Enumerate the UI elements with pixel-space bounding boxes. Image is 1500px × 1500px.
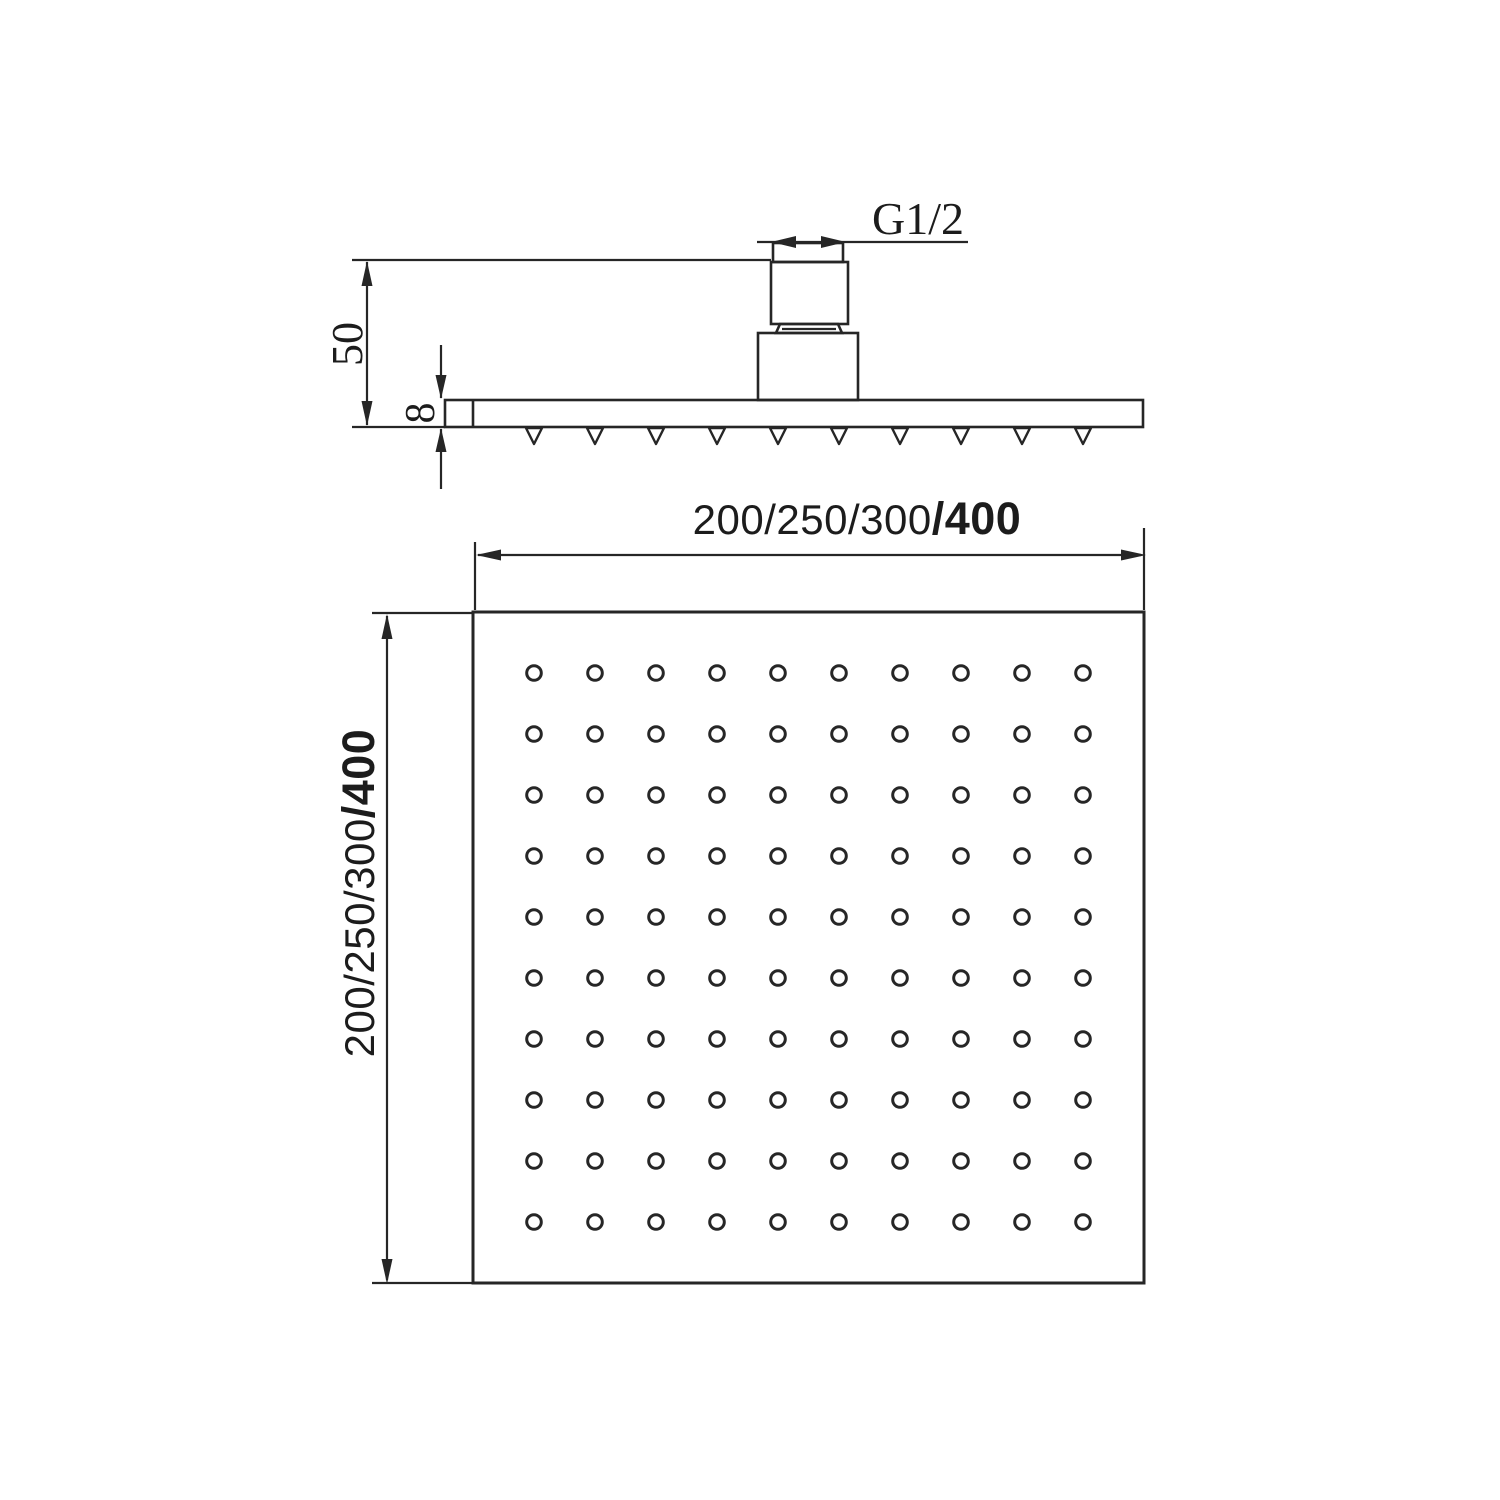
nozzle <box>1075 428 1091 444</box>
spray-hole <box>954 1093 969 1108</box>
arrowhead-down-icon <box>382 1259 393 1284</box>
spray-hole <box>771 727 786 742</box>
spray-hole <box>588 849 603 864</box>
nozzle <box>526 428 542 444</box>
nozzle <box>892 428 908 444</box>
nozzle <box>587 428 603 444</box>
spray-hole <box>527 849 542 864</box>
spray-hole <box>893 1093 908 1108</box>
spray-hole <box>832 666 847 681</box>
spray-hole <box>954 1154 969 1169</box>
spray-hole <box>771 1154 786 1169</box>
connector-nut <box>771 262 848 324</box>
inlet-connector <box>758 243 858 400</box>
side-view: G1/2 50 <box>323 193 1143 489</box>
arrowhead-down-icon <box>436 375 447 399</box>
spray-hole <box>649 971 664 986</box>
shower-head-drawing: G1/2 50 <box>0 0 1500 1500</box>
spray-hole <box>832 1032 847 1047</box>
spray-hole <box>649 1032 664 1047</box>
spray-hole <box>710 788 725 803</box>
spray-hole <box>649 849 664 864</box>
spray-hole <box>1076 849 1091 864</box>
arrowhead-up-icon <box>362 261 373 286</box>
spray-hole <box>771 1093 786 1108</box>
height-selected-text: /400 <box>333 729 384 819</box>
nozzle <box>1014 428 1030 444</box>
spray-hole <box>649 666 664 681</box>
spray-hole <box>710 910 725 925</box>
spray-hole <box>649 788 664 803</box>
height-dimension-label-plan: 200/250/300/400 <box>333 729 384 1058</box>
width-sizes-text: 200/250/300 <box>693 496 932 543</box>
nozzle <box>648 428 664 444</box>
spray-hole <box>527 910 542 925</box>
plate-profile <box>445 400 1143 427</box>
spray-hole <box>1076 1154 1091 1169</box>
spray-hole <box>1076 666 1091 681</box>
plate-face-outline <box>473 612 1144 1283</box>
threaded-inlet-tip <box>773 243 843 262</box>
spray-hole <box>527 1215 542 1230</box>
spray-hole <box>1015 971 1030 986</box>
spray-hole <box>771 1032 786 1047</box>
spray-hole <box>710 1032 725 1047</box>
spray-hole <box>527 666 542 681</box>
spray-hole <box>527 1032 542 1047</box>
spray-hole <box>771 971 786 986</box>
spray-hole <box>1076 910 1091 925</box>
spray-hole <box>893 1154 908 1169</box>
spray-hole <box>832 1093 847 1108</box>
arrowhead-down-icon <box>362 401 373 426</box>
spray-hole <box>893 727 908 742</box>
spray-hole <box>771 910 786 925</box>
spray-hole <box>832 788 847 803</box>
spray-hole <box>1015 1154 1030 1169</box>
spray-hole <box>954 910 969 925</box>
spray-hole <box>893 849 908 864</box>
spray-hole <box>1076 1093 1091 1108</box>
spray-hole <box>832 849 847 864</box>
spray-hole <box>1076 1215 1091 1230</box>
connector-base <box>758 333 858 400</box>
spray-hole <box>832 727 847 742</box>
nozzle <box>709 428 725 444</box>
spray-hole <box>954 971 969 986</box>
plan-view: 200/250/300/400 200/250/300/400 <box>333 493 1146 1284</box>
spray-hole <box>1076 788 1091 803</box>
height-sizes-text: 200/250/300 <box>336 818 383 1057</box>
spray-hole <box>954 666 969 681</box>
spray-hole <box>1015 727 1030 742</box>
spray-hole <box>893 788 908 803</box>
spray-hole <box>527 1154 542 1169</box>
spray-hole <box>771 788 786 803</box>
spray-hole <box>832 910 847 925</box>
spray-hole <box>893 1032 908 1047</box>
spray-hole <box>527 971 542 986</box>
nozzle <box>831 428 847 444</box>
spray-hole <box>588 727 603 742</box>
width-dimension-label: 200/250/300/400 <box>693 493 1022 544</box>
spray-hole <box>893 666 908 681</box>
spray-hole <box>893 1215 908 1230</box>
spray-hole <box>1015 1032 1030 1047</box>
shower-plate-side <box>445 400 1143 444</box>
spray-hole <box>710 1093 725 1108</box>
spray-hole <box>771 1215 786 1230</box>
spray-hole <box>710 1215 725 1230</box>
spray-hole <box>954 1032 969 1047</box>
width-dimension: 200/250/300/400 <box>475 493 1146 610</box>
spray-hole <box>649 727 664 742</box>
spray-hole <box>832 1154 847 1169</box>
spray-hole <box>954 727 969 742</box>
width-selected-text: /400 <box>932 493 1022 544</box>
arrowhead-up-icon <box>436 428 447 452</box>
spray-hole <box>588 788 603 803</box>
thickness-dimension-label: 8 <box>398 403 444 424</box>
spray-hole <box>588 910 603 925</box>
nozzle <box>770 428 786 444</box>
spray-hole <box>771 666 786 681</box>
thread-dimension: G1/2 <box>757 193 968 248</box>
spray-hole <box>1076 971 1091 986</box>
spray-hole <box>588 971 603 986</box>
arrowhead-left-icon <box>476 550 501 561</box>
nozzle-row <box>526 428 1091 444</box>
spray-hole <box>710 1154 725 1169</box>
height-dimension-label: 50 <box>323 322 372 366</box>
height-dimension-plan: 200/250/300/400 <box>333 613 474 1284</box>
spray-hole <box>1076 727 1091 742</box>
spray-hole <box>588 1093 603 1108</box>
spray-hole <box>1015 849 1030 864</box>
spray-hole <box>1015 788 1030 803</box>
height-dimension: 50 <box>323 260 771 427</box>
spray-hole <box>649 1093 664 1108</box>
nozzle <box>953 428 969 444</box>
spray-hole <box>832 971 847 986</box>
spray-hole <box>954 849 969 864</box>
spray-hole <box>1015 910 1030 925</box>
spray-hole <box>710 971 725 986</box>
spray-hole <box>588 1215 603 1230</box>
spray-hole <box>1015 666 1030 681</box>
arrowhead-up-icon <box>382 614 393 639</box>
spray-hole <box>710 727 725 742</box>
spray-hole <box>893 910 908 925</box>
arrowhead-right-icon <box>1121 550 1146 561</box>
spray-hole <box>954 1215 969 1230</box>
spray-hole <box>588 1032 603 1047</box>
spray-hole-grid <box>527 666 1091 1230</box>
spray-hole <box>1015 1093 1030 1108</box>
spray-hole <box>527 788 542 803</box>
spray-hole <box>649 1154 664 1169</box>
spray-hole <box>649 910 664 925</box>
spray-hole <box>954 788 969 803</box>
spray-hole <box>527 1093 542 1108</box>
spray-hole <box>649 1215 664 1230</box>
spray-hole <box>710 666 725 681</box>
spray-hole <box>1015 1215 1030 1230</box>
spray-hole <box>832 1215 847 1230</box>
spray-hole <box>588 666 603 681</box>
thickness-dimension: 8 <box>398 345 447 489</box>
spray-hole <box>771 849 786 864</box>
technical-drawing-canvas: G1/2 50 <box>0 0 1500 1500</box>
spray-hole <box>710 849 725 864</box>
spray-hole <box>588 1154 603 1169</box>
spray-hole <box>527 727 542 742</box>
thread-size-label: G1/2 <box>872 193 964 244</box>
spray-hole <box>1076 1032 1091 1047</box>
spray-hole <box>893 971 908 986</box>
